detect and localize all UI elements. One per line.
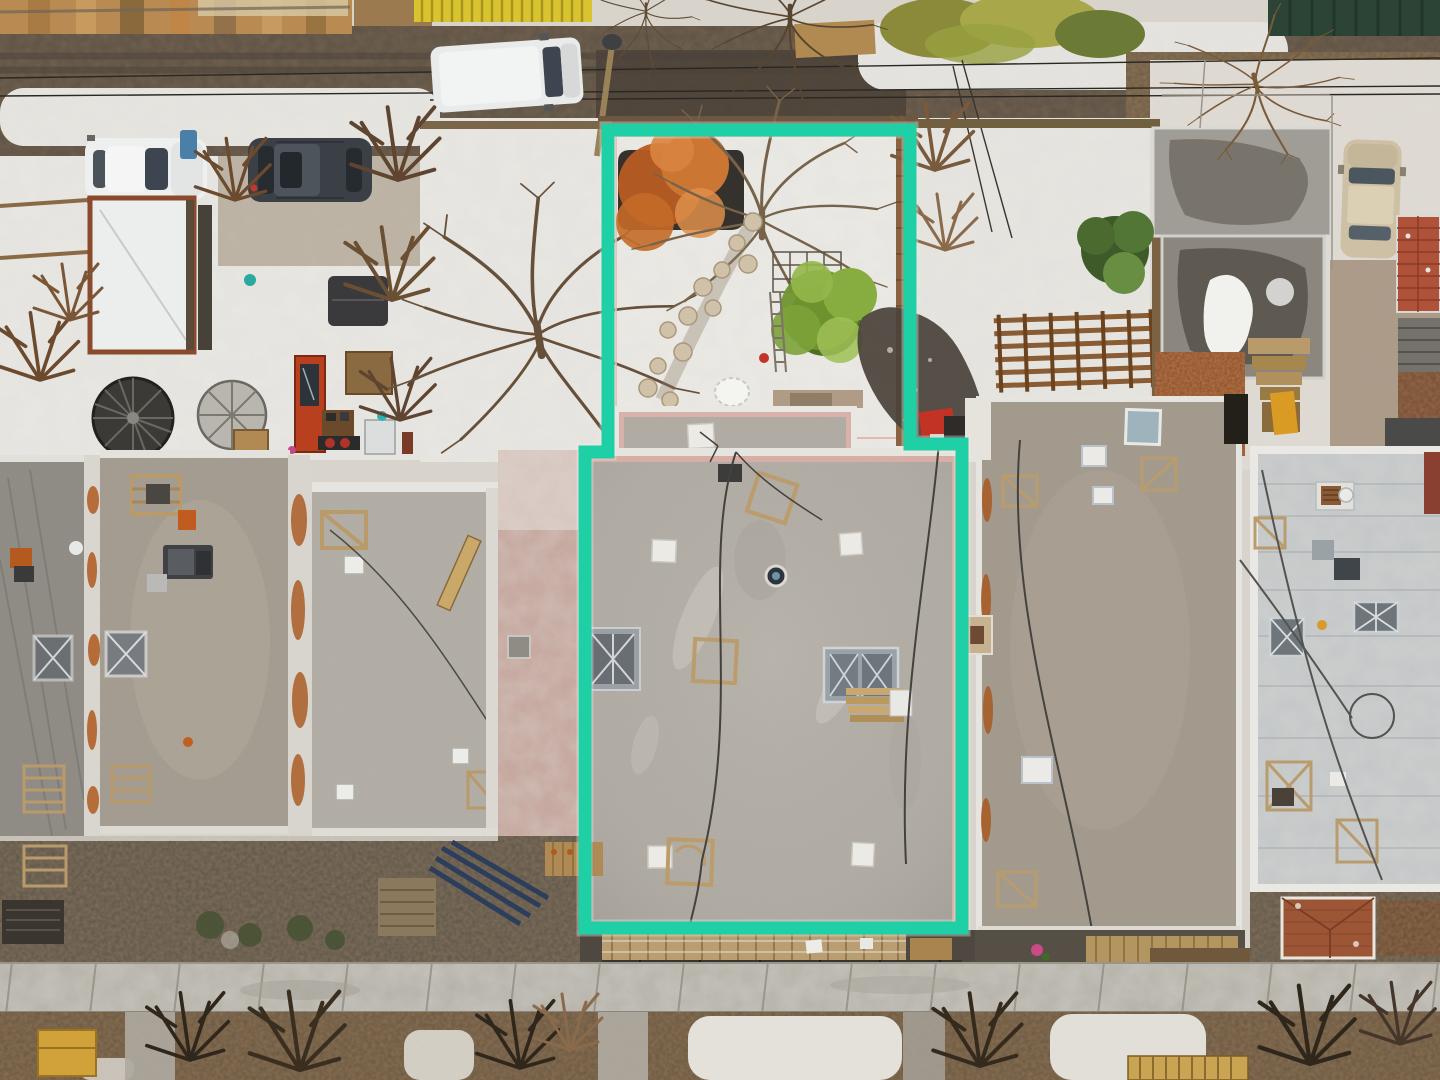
east-flat-skylight <box>1125 409 1160 444</box>
dark-bin <box>328 276 388 326</box>
sidewalk <box>0 962 1440 1014</box>
white-car-windshield <box>145 148 168 190</box>
parapet-a-b <box>84 455 102 840</box>
fe-metal-vent <box>1312 540 1334 560</box>
alley-bushes <box>880 0 1145 64</box>
red-yard-item <box>759 353 769 363</box>
garden-snow-3 <box>404 1030 474 1080</box>
fe-dark-vent <box>1334 558 1360 580</box>
roof-a-skylight <box>34 636 72 680</box>
stairwell-strip <box>198 205 212 350</box>
fe-skylight-1 <box>1354 602 1398 632</box>
terracotta-roof <box>1397 216 1440 312</box>
wood-front-steps <box>378 878 436 936</box>
front-walkway-3 <box>903 1012 945 1080</box>
parapet-b-c <box>288 455 310 833</box>
flower-pot-greenery <box>1042 953 1050 961</box>
green-dumpster <box>1268 0 1440 36</box>
left-porch-stairs <box>2 900 64 944</box>
table-with-burners <box>318 436 360 450</box>
far-east-building-roof <box>1240 418 1440 892</box>
yellow-equipment <box>1270 391 1298 435</box>
building-b-roof <box>100 450 290 834</box>
aerial-photo: Top-down winter aerial photo of a block … <box>0 0 1440 1080</box>
spiral-staircase-1 <box>93 378 173 458</box>
pink-flower-pot <box>1031 944 1043 956</box>
maroon-board <box>402 432 413 454</box>
east-building-roof <box>962 394 1248 936</box>
snow-shed <box>90 198 194 352</box>
west-back-fence <box>420 121 612 129</box>
leaf-debris-strip <box>773 390 863 408</box>
red-brick-chimney <box>1424 452 1440 514</box>
garage-upper-roof <box>1153 128 1331 236</box>
street-lamp-head <box>602 34 622 50</box>
white-appliance <box>365 420 395 454</box>
teal-item <box>244 274 256 286</box>
porch-white-sheet-2 <box>860 938 873 949</box>
roof-vent-top <box>687 423 714 448</box>
van-windshield <box>542 46 563 97</box>
building-a-roof <box>0 455 84 844</box>
wood-porch-deck <box>545 842 603 876</box>
garden-snow-1 <box>688 1016 902 1080</box>
roof-b-skylight <box>106 632 146 676</box>
yellow-pallet <box>1128 1056 1248 1080</box>
brick-porch-roof <box>1282 898 1374 958</box>
porch-white-sheet <box>805 939 822 954</box>
shelf-unit <box>322 410 354 436</box>
subject-skylight-left <box>586 628 640 690</box>
roof-b-orange-chimney <box>178 510 196 530</box>
front-walkway-2 <box>598 1012 648 1080</box>
blue-bin <box>180 130 197 159</box>
white-patio-table <box>715 378 749 406</box>
buildings-gap-shadow <box>1224 394 1248 444</box>
amber-roof-light <box>1317 620 1327 630</box>
porch-crate <box>910 938 952 960</box>
subject-building-roof <box>578 406 966 934</box>
aerial-photo-canvas <box>0 0 1440 1080</box>
fe-chimney-box <box>1316 482 1354 510</box>
beige-car-windshield <box>1349 167 1396 185</box>
subject-round-vent <box>766 566 786 586</box>
pink-side-wall <box>498 450 578 836</box>
yellow-crate <box>38 1030 96 1076</box>
